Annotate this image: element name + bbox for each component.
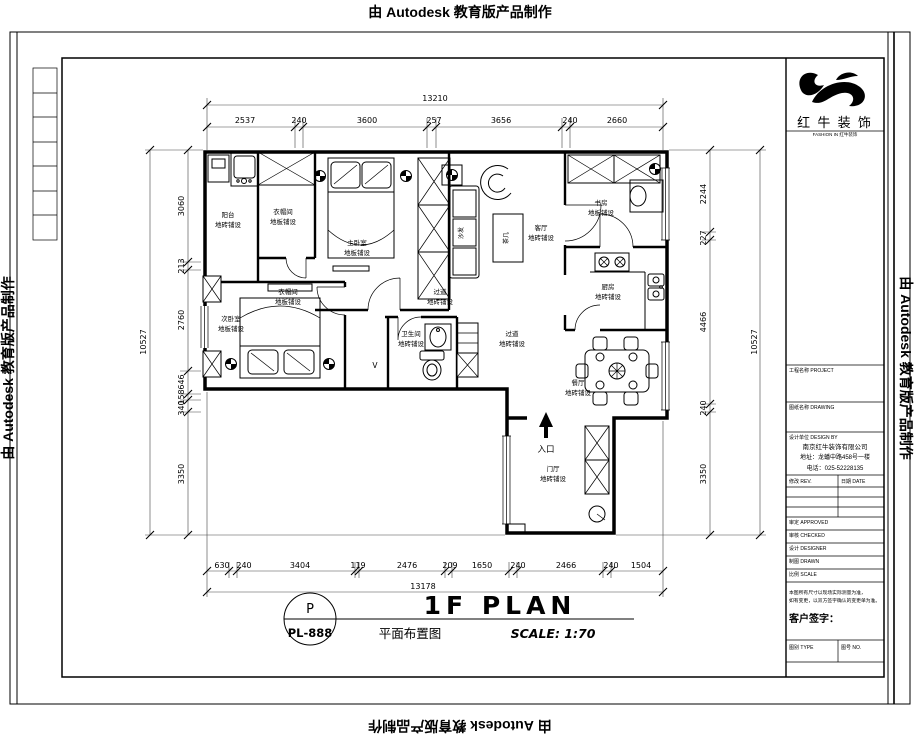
room-label: 餐厅 <box>572 378 586 387</box>
company-line1: 南京红牛装饰有限公司 <box>788 441 882 451</box>
svg-text:10527: 10527 <box>750 329 759 354</box>
room-label: 过道 <box>434 287 448 296</box>
room-label: 书房 <box>595 198 608 207</box>
svg-text:257: 257 <box>426 116 441 125</box>
entry-arrow <box>539 412 553 438</box>
bull-logo <box>799 73 865 107</box>
row-drawn: 制图 DRAWN <box>789 558 819 565</box>
row-scale: 比例 SCALE <box>789 571 817 578</box>
entry-label: 入口 <box>537 445 554 455</box>
svg-text:2244: 2244 <box>699 184 708 204</box>
bottom-right-label: 图号 NO. <box>841 644 861 651</box>
sheet-title-cn: 平面布置图 <box>379 626 442 641</box>
row-approved: 审定 APPROVED <box>789 519 828 526</box>
room-finish: 地板铺设 <box>344 248 371 257</box>
dim-text-top: 13210 2537 240 3600 257 3656 240 2660 <box>235 94 627 125</box>
room-label: 客厅 <box>535 223 549 232</box>
svg-text:13178: 13178 <box>410 582 435 591</box>
company-name: 红 牛 装 饰 <box>788 112 882 131</box>
dim-text-left: 10527 3060 213 2760 646 158 340 3350 <box>139 196 186 484</box>
svg-text:3404: 3404 <box>290 561 310 570</box>
svg-text:213: 213 <box>177 258 186 273</box>
svg-text:1504: 1504 <box>631 561 651 570</box>
drain-mark: V <box>372 361 378 370</box>
row-checked: 审核 CHECKED <box>789 532 825 539</box>
room-finish: 地板铺设 <box>218 324 245 333</box>
room-finish: 地砖铺设 <box>595 292 622 301</box>
field-design-by-label: 设计单位 DESIGN BY <box>789 434 838 441</box>
balcony-fixtures <box>208 152 258 186</box>
field-drawing-label: 图纸名称 DRAWING <box>789 404 834 411</box>
sofa-label: 沙发 <box>457 227 465 239</box>
room-label: 阳台 <box>222 210 235 219</box>
svg-text:2660: 2660 <box>607 116 627 125</box>
svg-text:227: 227 <box>699 230 708 245</box>
dim-text-right: 10527 2244 227 4466 240 3350 <box>699 184 759 484</box>
svg-text:646: 646 <box>177 374 186 389</box>
kitchen-counter <box>590 253 664 330</box>
svg-text:3060: 3060 <box>177 196 186 216</box>
note-line2: 如有变更，以双方签字确认的变更单为准。 <box>789 597 880 604</box>
room-label: 厨房 <box>602 282 615 291</box>
toilet <box>420 351 444 380</box>
room-finish: 地砖铺设 <box>565 388 592 397</box>
room-finish: 地板铺设 <box>275 297 302 306</box>
door-swings <box>286 205 633 340</box>
svg-text:119: 119 <box>350 561 365 570</box>
study-desk <box>630 180 663 212</box>
svg-text:3656: 3656 <box>491 116 511 125</box>
svg-text:209: 209 <box>442 561 457 570</box>
svg-text:3600: 3600 <box>357 116 377 125</box>
room-label: 次卧室 <box>221 314 241 323</box>
sheet-circle-letter: P <box>306 602 314 617</box>
room-label: 衣帽间 <box>278 287 298 296</box>
room-label: 过道 <box>506 329 520 338</box>
company-line3: 电话：025-52228135 <box>788 463 882 472</box>
svg-text:3350: 3350 <box>177 464 186 484</box>
svg-text:340: 340 <box>177 400 186 415</box>
svg-text:240: 240 <box>291 116 306 125</box>
room-finish: 地砖铺设 <box>499 339 526 348</box>
sheet-scale: SCALE: 1:70 <box>511 626 596 641</box>
svg-text:4466: 4466 <box>699 312 708 332</box>
svg-text:13210: 13210 <box>422 94 447 103</box>
room-finish: 地砖铺设 <box>540 474 567 483</box>
company-line2: 地址：龙蟠中路458号一楼 <box>788 452 882 461</box>
svg-text:3350: 3350 <box>699 464 708 484</box>
row-designer: 设计 DESIGNER <box>789 545 827 552</box>
sheet-title: P PL-888 1F PLAN 平面布置图 SCALE: 1:70 <box>284 591 634 645</box>
svg-text:240: 240 <box>236 561 251 570</box>
svg-text:2466: 2466 <box>556 561 576 570</box>
svg-text:240: 240 <box>562 116 577 125</box>
room-label: 卫生间 <box>401 329 421 338</box>
note-line1: 本图所有尺寸以现场实际测量为准， <box>789 589 866 596</box>
svg-text:2537: 2537 <box>235 116 255 125</box>
customer-sign-label: 客户签字： <box>789 610 839 625</box>
svg-text:240: 240 <box>603 561 618 570</box>
svg-text:1650: 1650 <box>472 561 492 570</box>
revision-strip <box>33 68 57 240</box>
room-label: 主卧室 <box>347 238 367 247</box>
svg-text:2476: 2476 <box>397 561 417 570</box>
bathroom-sink <box>425 324 451 350</box>
room-finish: 地板铺设 <box>588 208 615 217</box>
svg-text:2760: 2760 <box>177 310 186 330</box>
dim-text-bottom: 13178 630 240 3404 119 2476 209 1650 240… <box>214 561 651 591</box>
rev-col-label: 修改 REV. <box>789 478 812 485</box>
room-label: 门厅 <box>547 464 561 473</box>
drawing-canvas: 阳台 地砖铺设 衣帽间 地板铺设 主卧室 地板铺设 衣帽间 地板铺设 次卧室 地… <box>0 0 920 736</box>
sheet-title-en: 1F PLAN <box>424 591 577 620</box>
room-finish: 地砖铺设 <box>528 233 555 242</box>
svg-text:10527: 10527 <box>139 329 148 354</box>
lounge-chair <box>481 165 511 199</box>
cad-floorplan-screenshot: { "watermark": { "text": "由 Autodesk 教育版… <box>0 0 920 736</box>
room-finish: 地砖铺设 <box>427 297 454 306</box>
room-finish: 地砖铺设 <box>215 220 242 229</box>
svg-text:240: 240 <box>510 561 525 570</box>
sheet-number: PL-888 <box>288 626 333 640</box>
svg-text:630: 630 <box>214 561 229 570</box>
field-project-label: 工程名称 PROJECT <box>789 367 834 374</box>
svg-text:240: 240 <box>699 400 708 415</box>
room-finish: 地板铺设 <box>270 217 297 226</box>
room-finish: 地砖铺设 <box>398 339 425 348</box>
room-label: 衣帽间 <box>273 207 293 216</box>
tea-table-label: 茶几 <box>502 232 510 244</box>
company-tagline: FASHION IN 红牛装饰 <box>788 132 882 138</box>
date-col-label: 日期 DATE <box>841 478 865 485</box>
bottom-left-label: 图别 TYPE <box>789 644 813 651</box>
